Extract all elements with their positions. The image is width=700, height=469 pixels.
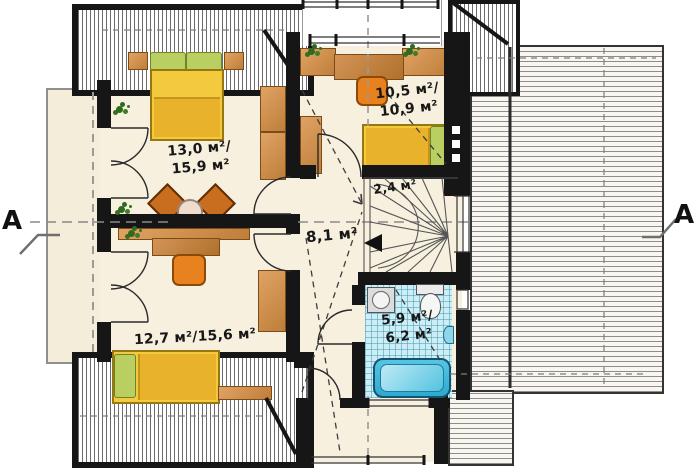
stair-direction-arrow: [364, 234, 382, 252]
section-marker-zigzag-left: [20, 235, 60, 254]
slope-dashed-diagonals: [302, 90, 446, 452]
section-marker-right: A: [674, 202, 694, 228]
floor-plan: 13,0 м²/ 15,9 м² 10,5 м²/ 10,9 м² 2,4 м²…: [0, 0, 700, 469]
section-marker-zigzag-right: [642, 219, 676, 237]
label-bathroom: 5,9 м²/ 6,2 м²: [370, 306, 445, 349]
section-marker-left: A: [2, 208, 22, 234]
area-line2: 15,9 м²: [171, 157, 231, 178]
area-line2: 6,2 м²: [385, 325, 433, 346]
area-line1: 8,1 м²: [305, 224, 358, 246]
